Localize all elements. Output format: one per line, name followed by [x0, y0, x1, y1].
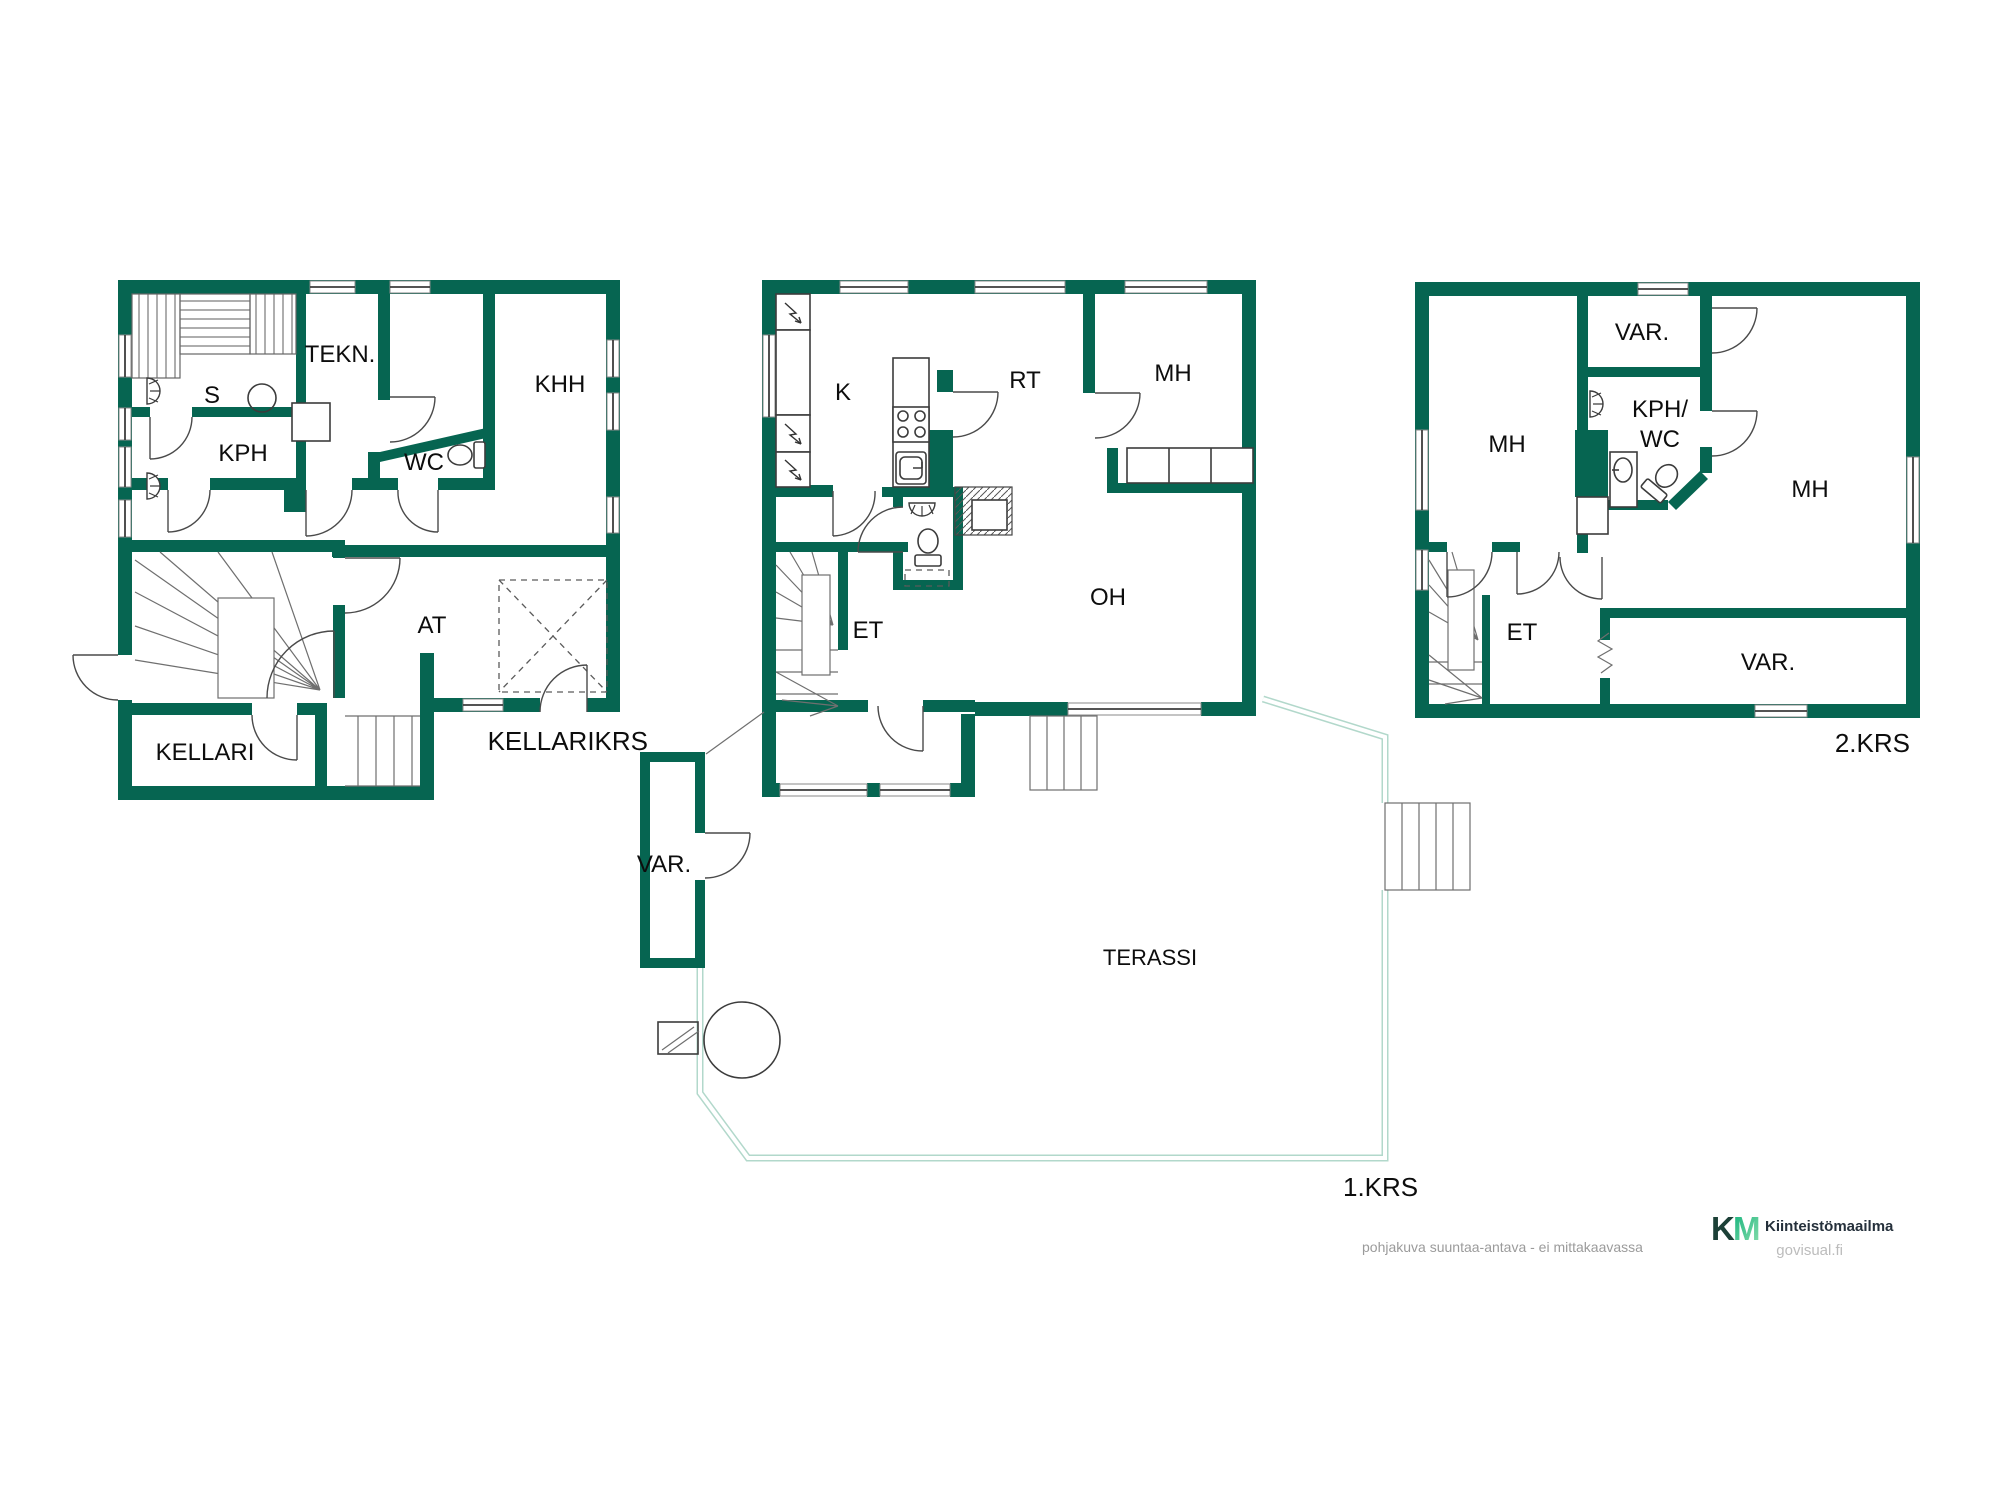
room-label-wc: WC [404, 449, 444, 476]
room-label-kph-line1: KPH/ [1632, 396, 1688, 423]
floor2-labels: MH VAR. KPH/ WC MH ET VAR. 2.KRS [1488, 319, 1910, 758]
floor-plan-svg: S KPH TEKN. WC KHH AT KELLARI KELLARIKRS [0, 0, 2000, 1500]
toilet-icon [915, 529, 941, 566]
floor1-wc-fixtures [905, 503, 949, 586]
room-label-kellari: KELLARI [156, 739, 255, 766]
room-label-oh: OH [1090, 584, 1126, 611]
floor1-stairs [776, 552, 838, 716]
boiler-icon [292, 403, 330, 441]
kitchen-sink-icon [896, 452, 926, 484]
sink-icon [1610, 452, 1637, 507]
kitchen-appliances [776, 294, 929, 487]
room-label-et: ET [853, 617, 884, 644]
floor1-doors [833, 392, 1140, 751]
floor1-wardrobe [1127, 448, 1253, 483]
logo-m-mark: M [1733, 1210, 1761, 1247]
room-label-mh: MH [1154, 360, 1191, 387]
terrace-table-icon [704, 1002, 780, 1078]
sink-icon [147, 473, 160, 499]
disclaimer-text: pohjakuva suuntaa-antava - ei mittakaava… [1362, 1239, 1643, 1255]
floor-label-basement: KELLARIKRS [488, 726, 648, 756]
basement-fixtures [147, 378, 607, 692]
website-text: govisual.fi [1776, 1242, 1843, 1259]
room-label-et: ET [1507, 619, 1538, 646]
kiinteistomaailma-logo: K M Kiinteistömaailma govisual.fi [1711, 1210, 1894, 1259]
floor2-walls [1415, 282, 1920, 718]
floor1-var-storage [640, 712, 764, 968]
room-label-mh-left: MH [1488, 431, 1525, 458]
room-label-mh-right: MH [1791, 476, 1828, 503]
fireplace [955, 487, 1012, 535]
room-label-var-top: VAR. [1615, 319, 1669, 346]
room-label-k: K [835, 379, 851, 406]
room-label-tekn: TEKN. [305, 341, 376, 368]
basement-plan: S KPH TEKN. WC KHH AT KELLARI KELLARIKRS [73, 280, 648, 800]
shower-icon [147, 378, 160, 404]
logo-k-mark: K [1711, 1210, 1735, 1247]
floor1-windows [763, 281, 1207, 796]
grill-icon [658, 1022, 699, 1054]
room-label-var-bottom: VAR. [1741, 649, 1795, 676]
toilet-icon [448, 442, 485, 468]
shower-icon [1590, 391, 1603, 417]
room-label-kph-line2: WC [1640, 426, 1680, 453]
floor2-stairs [1429, 552, 1482, 704]
exterior-stairs-porch [1030, 716, 1097, 790]
room-label-sauna: S [204, 382, 220, 409]
sauna-benches [132, 294, 296, 378]
room-label-khh: KHH [535, 371, 586, 398]
exterior-stairs-terrace [1385, 803, 1470, 890]
room-label-terassi: TERASSI [1103, 945, 1197, 970]
sink-icon [909, 503, 935, 516]
floor1-walls [762, 280, 1256, 797]
room-label-rt: RT [1009, 367, 1041, 394]
brand-name-text: Kiinteistömaailma [1765, 1218, 1894, 1235]
room-label-kph: KPH [218, 440, 267, 467]
footer: pohjakuva suuntaa-antava - ei mittakaava… [1362, 1210, 1894, 1259]
room-label-at: AT [418, 612, 447, 639]
room-label-var: VAR. [637, 851, 691, 878]
floor2-plan: MH VAR. KPH/ WC MH ET VAR. 2.KRS [1415, 282, 1920, 758]
floor1-plan: K RT MH OH ET VAR. TERASSI 1.KRS [637, 280, 1470, 1202]
floor-plan-page: S KPH TEKN. WC KHH AT KELLARI KELLARIKRS [0, 0, 2000, 1500]
floor-label-floor1: 1.KRS [1343, 1172, 1418, 1202]
floor-label-floor2: 2.KRS [1835, 728, 1910, 758]
